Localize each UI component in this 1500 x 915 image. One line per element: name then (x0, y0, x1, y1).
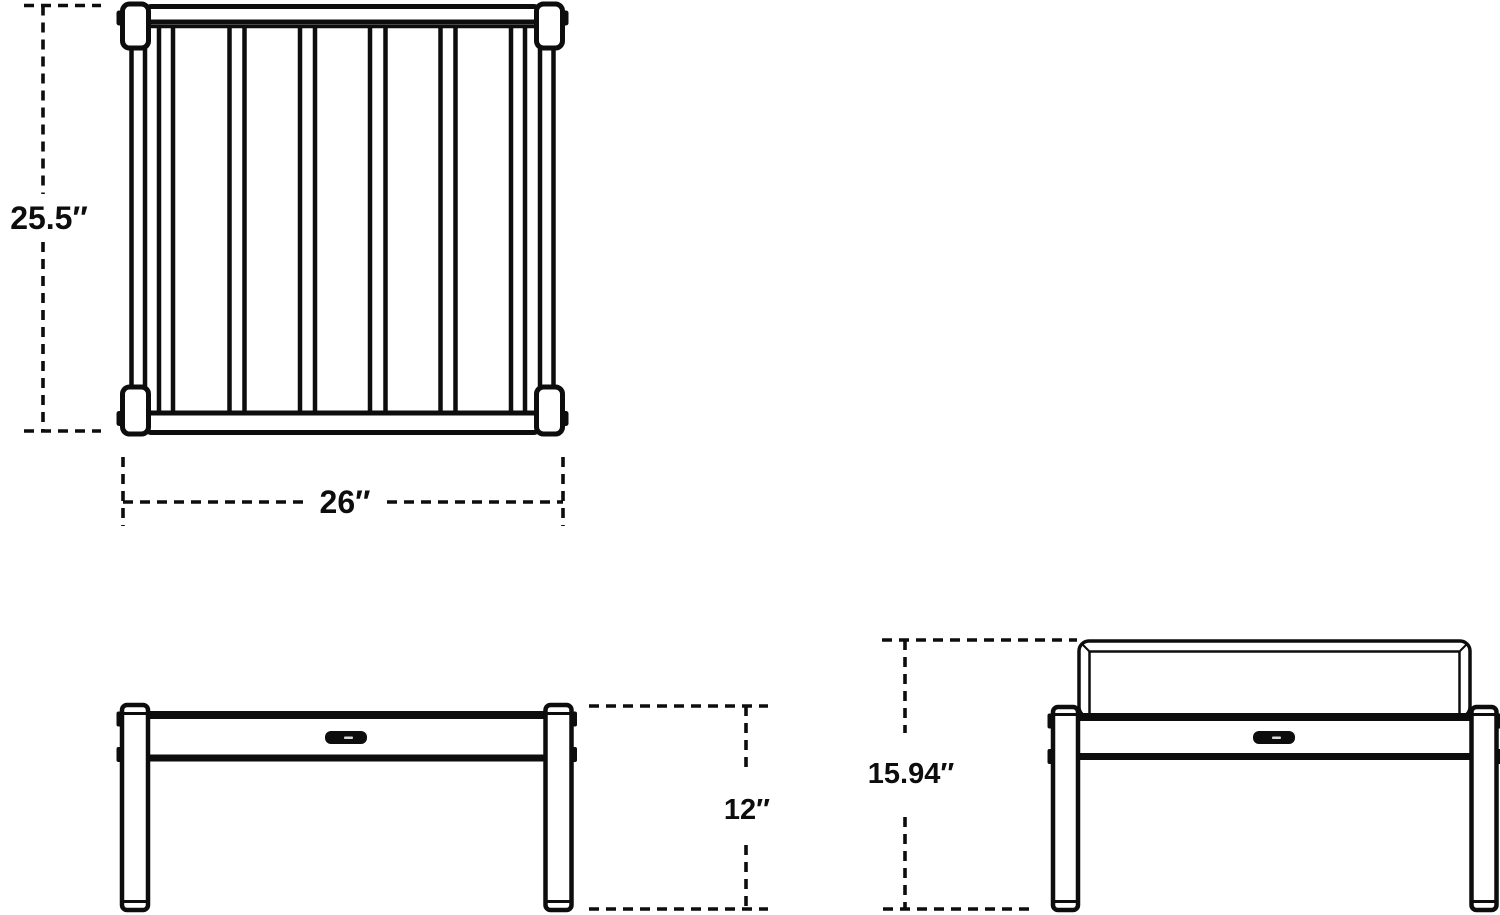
front-view (117, 705, 578, 910)
side-view-back-panel (1079, 641, 1470, 717)
dimension-seat-height: 12″ (589, 706, 770, 909)
dimension-drawing-canvas: 25.5″ 26″ (0, 0, 1500, 915)
leg (1053, 707, 1078, 910)
dimension-width-label: 26″ (320, 484, 371, 520)
dimension-depth: 25.5″ (10, 6, 101, 432)
leg (1472, 707, 1497, 910)
side-view (1048, 641, 1500, 910)
dimension-width: 26″ (123, 457, 563, 526)
top-view-side-rails (132, 47, 554, 389)
top-view-front-rail (148, 413, 537, 433)
dimension-depth-label: 25.5″ (10, 200, 88, 236)
top-view (117, 4, 569, 434)
dimension-overall-height: 15.94″ (868, 640, 1077, 909)
top-view-back-rail (148, 7, 537, 23)
corner-leg (123, 387, 149, 434)
top-view-slat-lines (159, 26, 525, 413)
furniture-dimension-diagram: 25.5″ 26″ (0, 0, 1500, 915)
corner-leg (537, 387, 563, 434)
front-view-brand-badge (325, 731, 367, 744)
leg (546, 705, 572, 910)
top-view-corner-legs (117, 4, 569, 434)
leg (122, 705, 148, 910)
dimension-seat-height-label: 12″ (724, 794, 770, 826)
dimension-overall-height-label: 15.94″ (868, 758, 955, 790)
corner-leg (123, 4, 149, 48)
corner-leg (537, 4, 563, 48)
side-view-brand-badge (1253, 731, 1295, 744)
